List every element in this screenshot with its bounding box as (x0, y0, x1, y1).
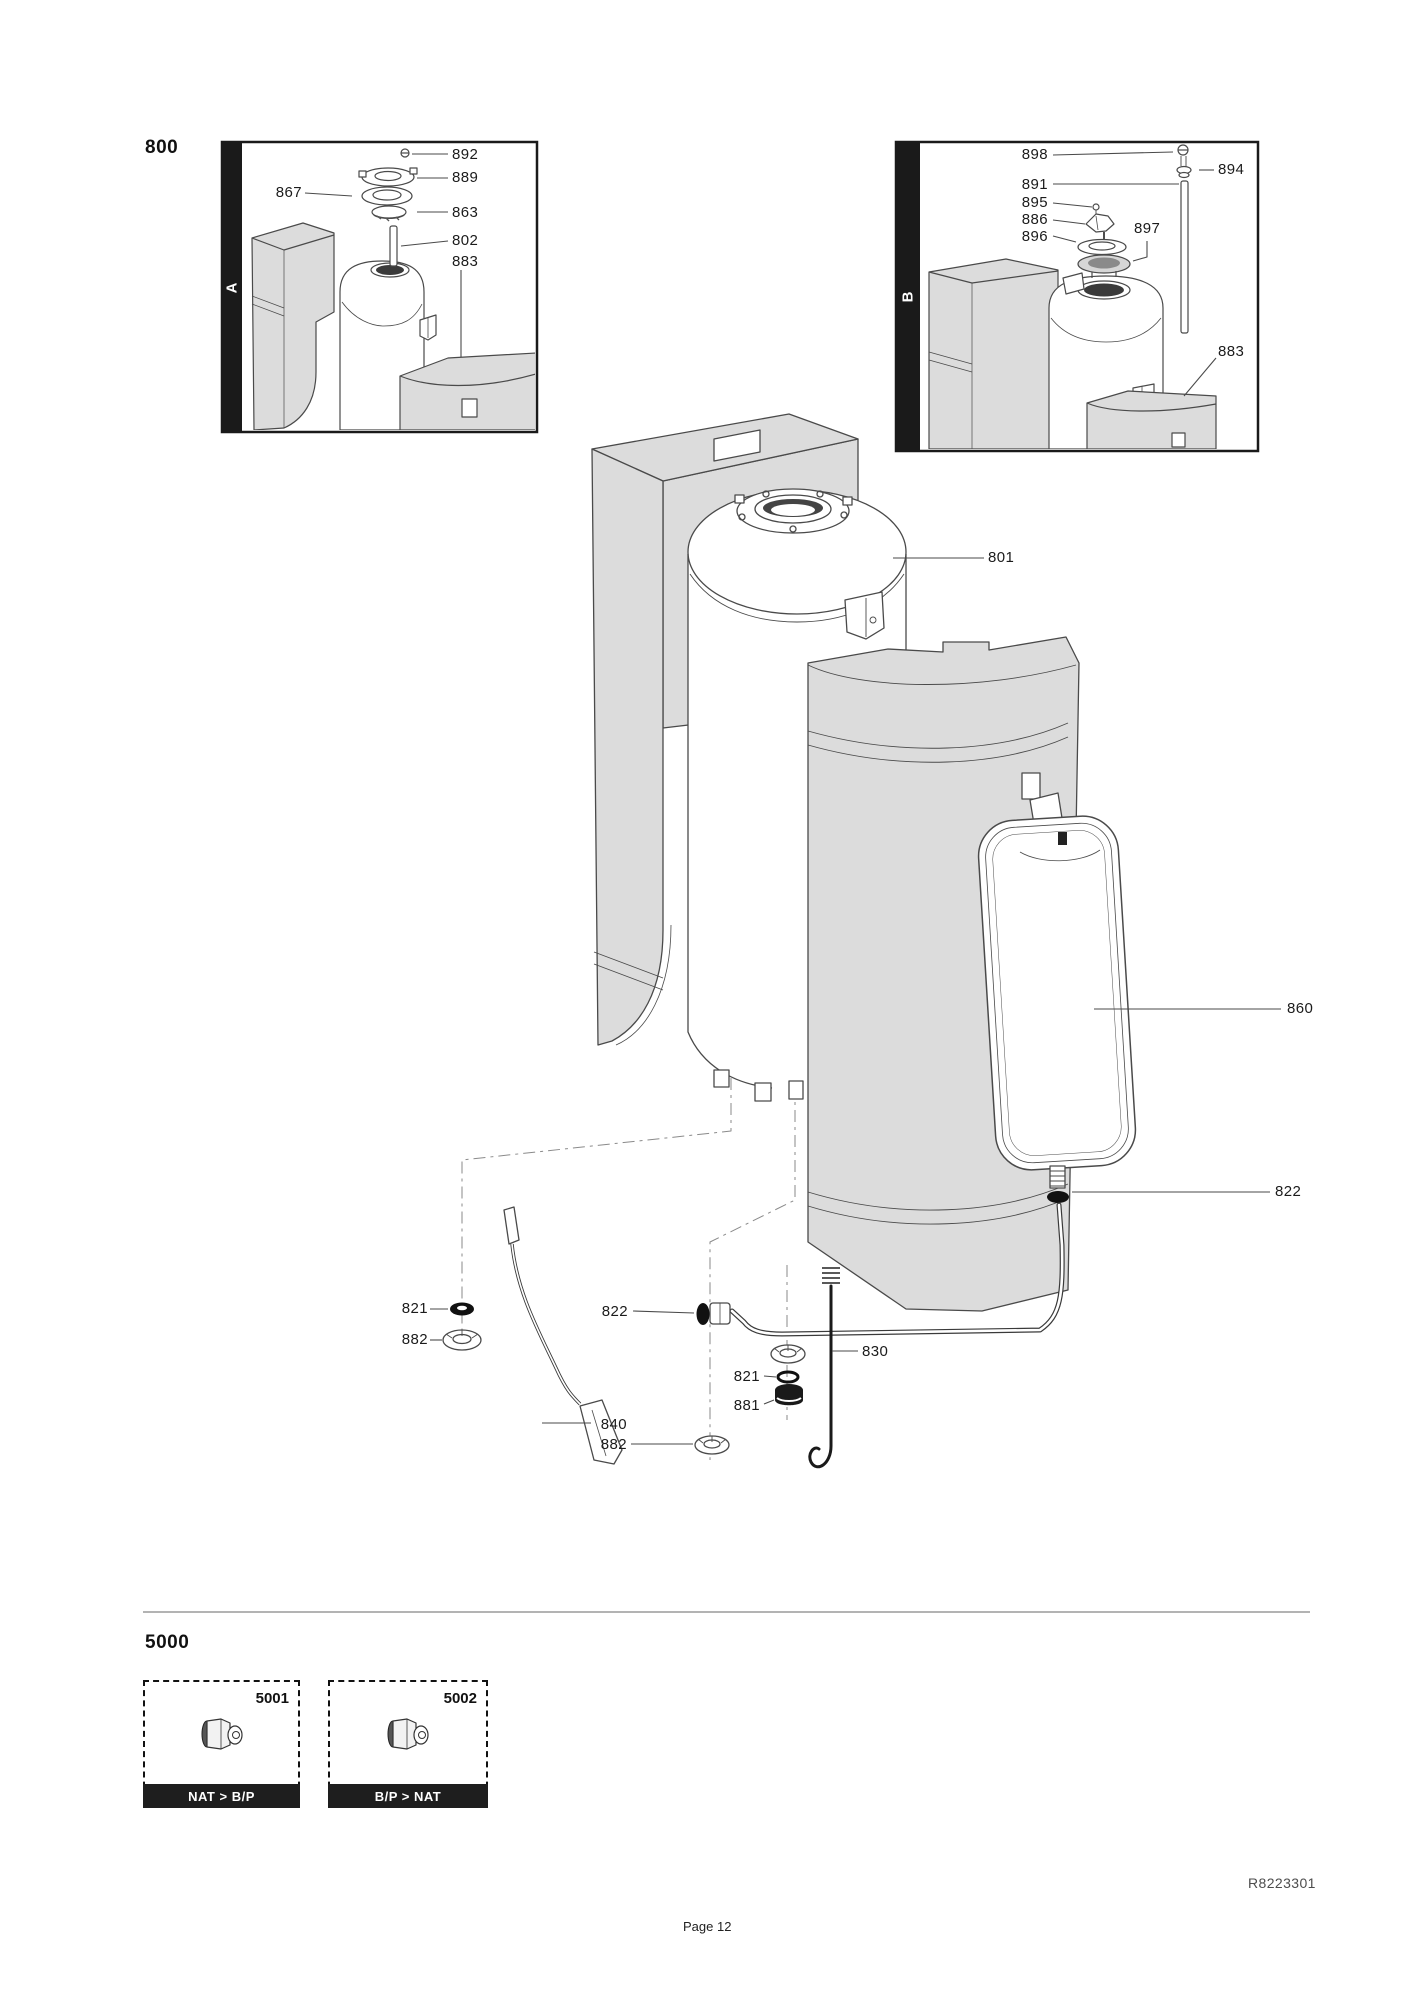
part-label-801: 801 (988, 550, 1014, 565)
cap-881 (775, 1384, 803, 1405)
part-label-840: 840 (583, 1417, 627, 1432)
fitting-822 (697, 1303, 731, 1325)
variant-code-5002: 5002 (444, 1690, 477, 1707)
part-label-896: 896 (1004, 229, 1048, 244)
section-divider (143, 1611, 1310, 1613)
vessel-valve (1058, 832, 1067, 845)
variant-caption-5002: B/P > NAT (375, 1789, 442, 1804)
o-ring-822-vessel (1047, 1191, 1069, 1203)
inset-b-anode-rod-891 (1181, 181, 1188, 333)
inset-a-bracket (420, 315, 436, 340)
part-label-867: 867 (258, 185, 302, 200)
part-label-822-vessel: 822 (1275, 1184, 1301, 1199)
inset-a-bar: A (222, 142, 242, 432)
part-label-894: 894 (1218, 162, 1244, 177)
nut-882-left (443, 1330, 481, 1350)
inset-b-letter: B (900, 291, 917, 303)
part-label-882-left: 882 (384, 1332, 428, 1347)
o-ring-821-drain (778, 1372, 798, 1382)
part-label-898: 898 (1004, 147, 1048, 162)
tank-flange (735, 489, 852, 533)
part-label-821-drain: 821 (716, 1369, 760, 1384)
variant-code-5001: 5001 (256, 1690, 289, 1707)
part-label-822-pipe: 822 (584, 1304, 628, 1319)
variant-caption-5001: NAT > B/P (188, 1789, 255, 1804)
variant-box-5002: 5002 B/P > NAT (328, 1680, 488, 1808)
document-reference: R8223301 (1248, 1875, 1316, 1891)
o-ring-821-left (450, 1303, 474, 1316)
gas-injector-icon (190, 1710, 254, 1758)
nut-882-drain (695, 1436, 729, 1454)
section-5000-title: 5000 (145, 1632, 189, 1654)
part-label-892: 892 (452, 147, 478, 162)
part-label-897: 897 (1134, 221, 1160, 236)
part-label-821-left: 821 (384, 1301, 428, 1316)
part-label-802: 802 (452, 233, 478, 248)
expansion-vessel-860 (976, 793, 1137, 1203)
inset-b-front-shell-883 (1087, 391, 1216, 449)
part-label-863: 863 (452, 205, 478, 220)
variant-caption-bar-5002: B/P > NAT (328, 1784, 488, 1808)
inset-a-anode-rod-802 (390, 226, 397, 266)
part-label-895: 895 (1004, 195, 1048, 210)
inset-a-gasket-867 (362, 187, 412, 205)
part-label-886: 886 (1004, 212, 1048, 227)
inset-b-back-shell (929, 259, 1058, 449)
variant-caption-bar-5001: NAT > B/P (143, 1784, 300, 1808)
inset-b-gasket-896 (1078, 240, 1126, 255)
inset-b-bar: B (896, 142, 920, 451)
part-label-883-a: 883 (452, 254, 478, 269)
part-label-830: 830 (862, 1344, 888, 1359)
inset-a-letter: A (224, 281, 241, 293)
section-800-title: 800 (145, 137, 178, 159)
inset-b-box (896, 142, 1258, 451)
gas-injector-icon (376, 1710, 440, 1758)
part-label-881: 881 (716, 1398, 760, 1413)
page-number: Page 12 (683, 1919, 731, 1934)
inset-a-screw-892 (401, 149, 409, 157)
part-label-889: 889 (452, 170, 478, 185)
part-label-860: 860 (1287, 1001, 1313, 1016)
variant-box-5001: 5001 NAT > B/P (143, 1680, 300, 1808)
pipe-830 (810, 1268, 840, 1467)
part-label-891: 891 (1004, 177, 1048, 192)
parts-diagram-page: 800 5000 A B 892 889 867 863 802 883 898… (0, 0, 1410, 1995)
strap-bracket (845, 592, 884, 639)
flange-nut (771, 1345, 805, 1363)
part-label-882-drain: 882 (583, 1437, 627, 1452)
part-label-883-b: 883 (1218, 344, 1244, 359)
inset-b-clip-894 (1177, 167, 1191, 178)
